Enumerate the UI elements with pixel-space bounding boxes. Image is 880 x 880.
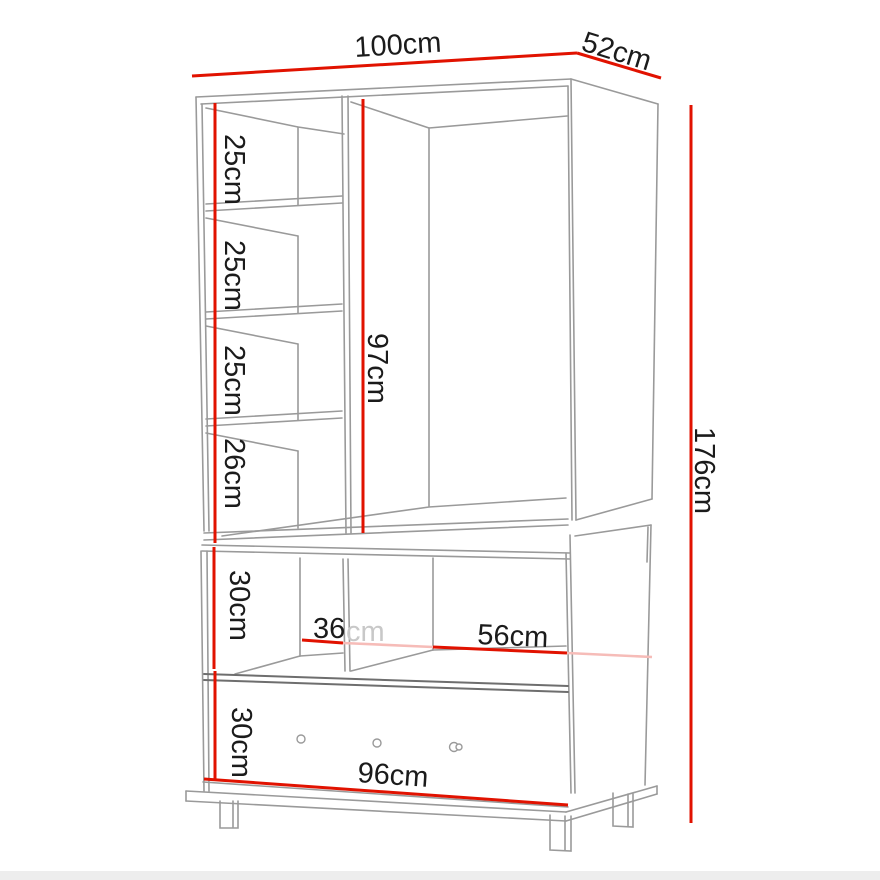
lower-right-rear-edge: [645, 525, 651, 785]
label-right-height: 176cm: [688, 427, 720, 514]
lower-left-edge-outer: [201, 551, 204, 791]
dimension-labels: 100cm 52cm 176cm 97cm 25cm 25cm 25cm 26c…: [218, 26, 720, 794]
drawer-knob-middle: [373, 739, 381, 747]
label-top-width: 100cm: [353, 27, 442, 64]
partition-right-line: [348, 96, 351, 533]
right-face-bottom-edge: [576, 499, 652, 520]
drawer-knob-right-detail: [456, 744, 462, 750]
lower-right-rear-notch: [647, 527, 648, 562]
label-shelf-gap-3: 25cm: [218, 345, 250, 416]
drawer-top-edge-b: [204, 680, 568, 692]
upper-floor-front-bottom: [204, 525, 568, 540]
ceiling-depth-line-left: [206, 108, 344, 134]
lower-right-floor-depth: [351, 650, 433, 671]
drawer-knob-left: [297, 735, 305, 743]
label-top-depth: 52cm: [578, 26, 655, 77]
label-shelf-gap-1: 25cm: [218, 134, 250, 205]
dim-line-faded-right: [567, 653, 652, 657]
shelf3-bottom: [206, 418, 342, 426]
dimension-lines: [192, 53, 691, 823]
drawer-top-edge-a: [204, 674, 568, 686]
label-hanging-height: 97cm: [361, 333, 393, 404]
label-shelf-gap-4: 26cm: [218, 438, 250, 509]
lower-left-edge-inner: [207, 551, 209, 791]
shelf2-depth-line: [206, 326, 298, 344]
floor-strip: [0, 871, 880, 880]
lower-divider-right: [348, 559, 350, 671]
back-wall-top-edge: [429, 116, 567, 128]
wardrobe-dimension-diagram: 100cm 52cm 176cm 97cm 25cm 25cm 25cm 26c…: [0, 0, 880, 880]
top-right-depth-edge: [571, 79, 658, 104]
lower-left-comp-back-bottom: [300, 653, 343, 656]
partition-left-line: [342, 96, 346, 533]
label-drawer-height: 30cm: [225, 707, 257, 778]
lower-right-top-edge: [575, 525, 651, 536]
right-rear-edge: [652, 104, 658, 499]
label-open-right-width: 56cm: [477, 619, 549, 654]
label-bottom-width: 96cm: [357, 757, 430, 794]
plinth-front-bottom: [186, 801, 566, 821]
label-open-left-width-unit: cm: [346, 616, 385, 648]
label-shelf-gap-2: 25cm: [218, 240, 250, 311]
lower-left-floor-depth: [235, 656, 300, 674]
diagram-canvas: 100cm 52cm 176cm 97cm 25cm 25cm 25cm 26c…: [0, 0, 880, 880]
shelf2-bottom: [206, 311, 342, 319]
leg-front-left: [220, 801, 238, 828]
shelf1-depth-line: [206, 218, 298, 236]
label-open-left-width: 36: [313, 613, 345, 645]
label-open-shelf-height: 30cm: [223, 570, 255, 641]
